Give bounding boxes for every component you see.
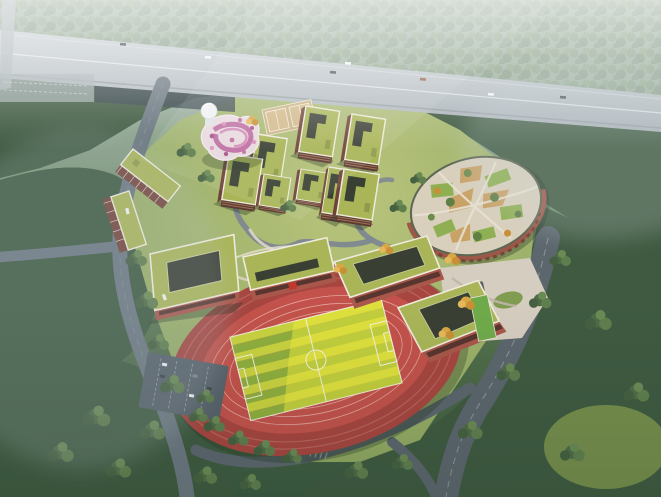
campus-scene — [0, 0, 661, 497]
aerial-rendering — [0, 0, 661, 497]
atmospheric-haze — [0, 0, 661, 497]
